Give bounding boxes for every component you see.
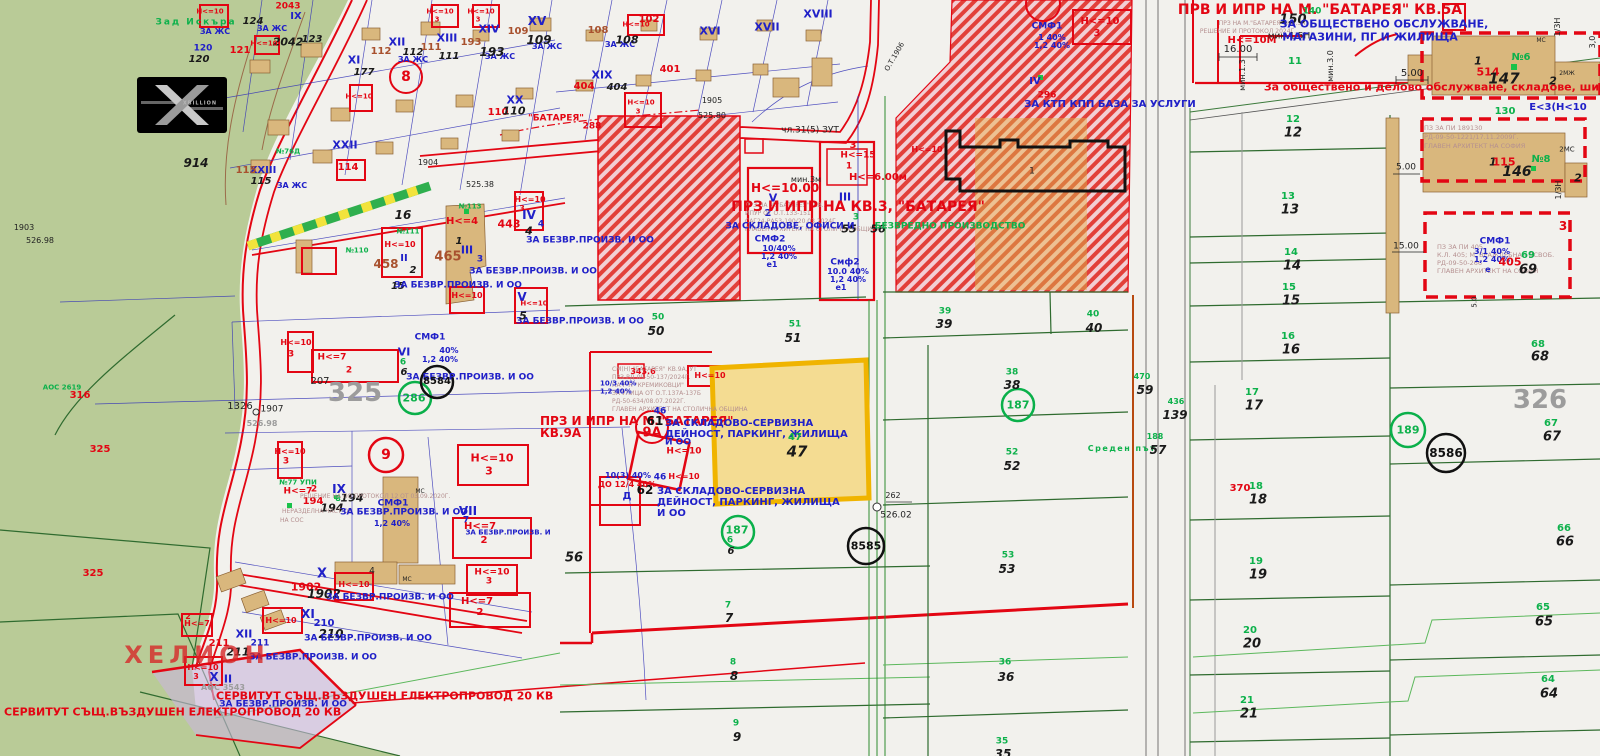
map-label: Н<=7: [318, 354, 347, 363]
map-label: 8586: [1429, 447, 1462, 459]
map-label: ЗА БЕЗВР.ПРОИЗВ. И ОО: [394, 282, 522, 291]
map-label: 53: [999, 563, 1016, 575]
map-label: 17: [1245, 388, 1259, 398]
map-label: 51: [789, 321, 802, 330]
map-label: 114: [338, 163, 359, 173]
map-label: 316: [70, 391, 91, 401]
map-label: 436: [1168, 398, 1185, 406]
map-label: 325: [90, 445, 111, 455]
map-label: 5: [519, 311, 527, 322]
map-label: чл.31(5) ЗУТ: [781, 127, 839, 136]
map-label: 40%: [439, 347, 458, 355]
map-label: Н<=10: [196, 9, 223, 16]
map-label: 458: [373, 258, 398, 270]
map-label: №111: [396, 229, 419, 236]
map-label: 19: [1249, 569, 1267, 582]
map-label: КВ.9А: [540, 427, 581, 439]
map-label: 526.02: [880, 512, 912, 521]
map-label: Н<=7: [461, 597, 493, 607]
map-label: 1,2 40%: [374, 520, 410, 528]
map-label: МАГАЗИНИ, ПГ И ЖИЛИЩА: [1282, 32, 1458, 43]
map-label: 288: [583, 123, 602, 132]
map-label: Н<=10: [622, 22, 649, 29]
map-label: мин.1.3: [1239, 59, 1247, 91]
map-label: 443: [498, 219, 521, 230]
map-label: 7: [725, 602, 731, 611]
map-label: 14: [1283, 260, 1301, 273]
map-label: XV: [528, 15, 547, 27]
map-label: 21: [1240, 696, 1254, 706]
map-label: РД-50-634/08.07.2022Г.: [612, 399, 686, 405]
map-label: 6: [727, 537, 733, 546]
map-label: 15: [1282, 295, 1300, 308]
map-label: №113: [458, 204, 481, 211]
map-label: е1: [836, 284, 847, 292]
map-label: 187: [726, 525, 749, 536]
map-label: 8585: [851, 541, 882, 552]
map-label: 9А: [642, 427, 661, 440]
map-label: МС: [1536, 38, 1545, 44]
map-label: XBILLION: [183, 102, 217, 107]
map-label: 8: [730, 659, 736, 668]
map-label: 47: [787, 445, 808, 460]
map-label: 123: [302, 35, 323, 45]
map-label: 193: [479, 46, 504, 58]
map-label: 3: [1559, 220, 1567, 232]
map-label: ЗА ЖС: [200, 28, 230, 36]
map-label: 370: [1230, 484, 1251, 494]
map-label: 1907: [261, 406, 284, 415]
map-label: "БАТАРЕЯ": [528, 115, 584, 124]
map-label: ЗА БЕЗВР.ПРОИЗВ. И ОО: [526, 237, 654, 246]
map-label: 68: [1531, 351, 1549, 364]
map-label: Н<=10: [474, 569, 509, 578]
map-label: 1905: [702, 97, 722, 105]
map-label: Е<3(Н<10: [1529, 103, 1586, 113]
map-label: 3: [283, 458, 289, 467]
map-label: 1904: [418, 159, 438, 167]
map-label: Н<=10: [471, 453, 514, 464]
map-label: 3: [193, 673, 199, 681]
map-label: 69: [1521, 251, 1535, 261]
map-label: 147: [1488, 72, 1519, 87]
map-label: XVII: [754, 22, 779, 33]
map-label: 10/3 40%: [600, 381, 636, 388]
map-label: Н<=10: [668, 473, 699, 481]
map-label: 14: [1284, 248, 1298, 258]
map-label: 8: [401, 70, 411, 84]
map-label: ЗА БЕЗВР.ПРОИЗВ. И ОО: [219, 701, 347, 710]
map-label: 3: [477, 256, 483, 265]
map-label: 109: [526, 34, 551, 46]
map-label: X: [317, 568, 327, 581]
map-labels-layer: Зад Искъра3163253259141903526.98АОС 2619…: [0, 0, 1600, 756]
map-label: 3: [288, 351, 294, 360]
map-label: ХЕЛИОН: [124, 643, 269, 667]
map-label: 1,2 40%: [422, 356, 458, 364]
map-label: 17: [1245, 400, 1263, 413]
map-label: 3: [850, 141, 857, 151]
map-label: 525.80: [698, 112, 726, 120]
map-label: 50: [648, 325, 665, 337]
map-label: ЗА ОБЩЕСТВЕНО ОБСЛУЖВАНЕ,: [1280, 19, 1489, 30]
map-label: 526.98: [247, 420, 278, 428]
map-label: 53: [1002, 552, 1015, 561]
map-label: ЗА КТП КПП БАЗА ЗА УСЛУГИ: [1024, 100, 1195, 110]
map-label: 13: [1281, 204, 1299, 217]
map-label: 1/3Н: [1554, 18, 1562, 37]
map-label: 35: [996, 738, 1009, 747]
map-label: Н<=15: [840, 152, 875, 161]
map-label: 40: [1086, 322, 1103, 334]
map-label: 111: [439, 52, 460, 62]
map-label: 187: [1007, 400, 1030, 411]
map-label: 1,2 40%: [1034, 42, 1070, 50]
map-label: 470: [1134, 373, 1151, 381]
map-label: Н<=10: [1080, 17, 1119, 27]
map-label: IX: [290, 12, 301, 22]
map-label: СМ(Н) "БАТАРЕЯ" КВ.9А, УТ: [612, 367, 697, 373]
map-label: ЗА ЖС: [277, 182, 307, 190]
map-label: ДЕЙНОСТ, ПАРКИНГ, ЖИЛИЩА: [665, 430, 848, 440]
map-label: 11: [1288, 57, 1302, 67]
map-label: 188: [1147, 433, 1164, 441]
map-label: 130: [1495, 107, 1516, 117]
map-label: 5.0: [1472, 296, 1479, 307]
map-label: 16.00: [1224, 45, 1253, 55]
map-label: 262: [885, 492, 900, 500]
map-label: ДО 12/4 40%: [598, 481, 656, 489]
map-label: 8: [730, 670, 738, 682]
map-label: 1903: [14, 224, 34, 232]
map-label: 1: [1029, 168, 1035, 177]
map-label: 465: [434, 251, 461, 264]
map-label: е: [1485, 266, 1490, 274]
map-label: МС: [402, 577, 411, 583]
map-label: 177: [354, 68, 375, 78]
map-label: 16: [395, 209, 412, 221]
map-label: СМФ1: [1480, 238, 1511, 247]
map-label: IV: [522, 209, 536, 221]
map-label: 1326: [227, 402, 252, 412]
map-label: 4: [369, 568, 375, 577]
map-label: АОС 2619: [43, 385, 81, 392]
map-label: Н<=10: [451, 292, 482, 300]
map-label: 2: [185, 613, 191, 621]
map-label: 64: [1540, 688, 1558, 701]
map-label: 5.00: [1401, 69, 1423, 79]
cadastral-map-canvas[interactable]: Зад Искъра3163253259141903526.98АОС 2619…: [0, 0, 1600, 756]
map-label: Н<=7: [184, 620, 210, 628]
map-label: 2: [1549, 76, 1557, 87]
map-label: ПЗ ЗА ПИ 189130: [1424, 125, 1482, 132]
map-label: Н<=10: [274, 448, 305, 456]
map-label: 108: [588, 26, 609, 36]
map-label: ЗА БЕЗВР.ПРОИЗВ. И ОО: [326, 594, 454, 603]
map-label: IV: [1029, 77, 1040, 87]
map-label: 52: [1006, 449, 1019, 458]
map-label: ЗА СКЛАДОВО-СЕРВИЗНА: [657, 487, 805, 497]
map-label: Н<=10: [911, 146, 942, 154]
map-label: 18: [1249, 482, 1263, 492]
map-label: 3: [485, 466, 493, 477]
map-label: ЗА ЖС: [257, 25, 287, 33]
map-label: 56: [565, 552, 583, 565]
map-label: 189: [1397, 425, 1420, 436]
map-label: 35: [995, 748, 1012, 756]
map-label: 8584: [423, 377, 451, 387]
map-label: ЗА БЕЗВР.ПРОИЗВ. И ОО: [304, 635, 432, 644]
map-label: 38: [1004, 379, 1021, 391]
map-label: 36: [998, 671, 1015, 683]
map-label: 66: [1556, 536, 1574, 549]
map-label: 6: [728, 547, 735, 557]
map-label: 526.98: [26, 237, 54, 245]
map-label: XI: [348, 55, 361, 66]
map-label: 19: [1249, 557, 1263, 567]
map-label: 325: [83, 569, 104, 579]
map-label: №110: [345, 248, 368, 255]
map-label: 39: [939, 308, 952, 317]
map-label: 69: [1519, 264, 1537, 277]
map-label: РД-09-50-1221/17.11.2009Г.: [1424, 134, 1519, 141]
map-label: II: [400, 254, 407, 264]
map-label: 12: [1284, 127, 1302, 140]
map-label: 3: [435, 17, 440, 24]
map-label: 112: [371, 47, 392, 57]
map-label: Н<=10: [384, 241, 415, 249]
map-label: Н<=10: [345, 94, 372, 101]
map-label: ГЛАВЕН АРХИТЕКТ НА СТОЛИЧНА ОБЩИНА: [612, 407, 747, 413]
map-label: 404: [607, 83, 628, 93]
map-label: 286: [403, 393, 426, 404]
map-label: Д: [623, 492, 632, 502]
map-label: СМФ1: [1032, 23, 1063, 32]
map-label: 3: [486, 578, 492, 587]
map-label: 15.00: [1393, 243, 1419, 252]
map-label: Н<=10: [265, 617, 296, 625]
map-label: 20: [1243, 626, 1257, 636]
map-label: Среден път: [1088, 445, 1156, 453]
map-label: О.Т.1906: [884, 41, 906, 72]
map-label: 2МЖ: [1559, 71, 1574, 77]
map-label: 67: [1544, 419, 1558, 429]
map-label: ЗА БЕЗВР.ПРОИЗВ. И ОО: [516, 318, 644, 327]
map-label: 10(3) 40%: [605, 472, 651, 480]
map-label: 2: [477, 608, 484, 618]
map-label: 67: [1543, 431, 1561, 444]
map-label: №8: [1532, 155, 1551, 165]
map-label: 121: [230, 46, 251, 56]
map-label: 108: [616, 35, 639, 46]
map-label: ЗА БЕЗВР.ПРОИЗВ. И ОО: [340, 509, 468, 518]
map-label: 39: [936, 318, 953, 330]
map-label: И ОО: [657, 509, 686, 519]
map-label: 68: [1531, 340, 1545, 350]
map-label: 15: [1282, 283, 1296, 293]
map-label: 64: [1541, 675, 1555, 685]
map-label: 2МС: [1559, 147, 1574, 154]
map-label: Н<=10: [250, 41, 277, 48]
map-label: 18: [1249, 494, 1267, 507]
map-label: Н<=10: [666, 448, 701, 457]
map-label: 1: [846, 163, 852, 172]
map-label: №76Д: [276, 149, 300, 156]
map-label: СМФ1: [415, 334, 446, 343]
map-label: мин.3.0: [1327, 50, 1335, 82]
map-label: 109: [508, 27, 529, 37]
map-label: ДЕЙНОСТ, ПАРКИНГ, ЖИЛИЩА: [657, 498, 840, 508]
map-label: VI: [398, 347, 411, 358]
map-label: 115: [251, 177, 272, 187]
map-label: 2: [410, 266, 417, 276]
map-label: III: [839, 192, 851, 203]
map-label: 51: [785, 332, 802, 344]
map-label: 47: [788, 433, 802, 443]
map-label: 326: [1513, 387, 1567, 413]
map-label: 38: [1006, 369, 1019, 378]
map-label: 115: [236, 166, 257, 176]
map-label: 140: [1303, 8, 1322, 17]
map-label: Н<=10: [627, 100, 654, 107]
map-label: 9: [733, 731, 741, 743]
map-label: Х: [209, 671, 218, 683]
map-label: Н<=10: [694, 372, 725, 380]
map-label: 46: [654, 408, 667, 417]
map-label: 57: [1150, 444, 1167, 456]
map-label: 1,2 40%: [600, 389, 632, 396]
map-label: Н<=10: [426, 9, 453, 16]
map-label: №6: [1512, 53, 1531, 63]
map-label: Н<=10.00: [751, 182, 819, 194]
map-label: XVIII: [803, 9, 832, 20]
map-label: 40: [1087, 311, 1100, 320]
map-label: 50: [652, 314, 665, 323]
map-label: XIV: [478, 24, 499, 35]
map-label: 525.38: [466, 181, 494, 189]
map-label: 66: [1557, 524, 1571, 534]
map-label: 4: [538, 221, 544, 230]
map-label: 59: [1137, 384, 1154, 396]
map-label: 404: [574, 82, 595, 92]
map-label: 16: [1282, 344, 1300, 357]
map-label: 120: [189, 55, 210, 65]
map-label: Н<=10: [467, 9, 494, 16]
map-label: 20: [1243, 638, 1261, 651]
map-label: 13: [1281, 192, 1295, 202]
map-label: 401: [660, 65, 681, 75]
map-label: 16: [1281, 332, 1295, 342]
map-label: 139: [1162, 409, 1187, 421]
map-label: 110: [503, 106, 526, 117]
map-label: 65: [1535, 616, 1553, 629]
map-label: XXII: [332, 140, 357, 151]
map-label: 3: [636, 109, 641, 116]
map-label: III: [461, 245, 473, 256]
map-label: 146: [1502, 165, 1531, 179]
map-label: е1: [767, 261, 778, 269]
map-label: 207: [310, 377, 329, 387]
map-label: Н<=4: [446, 217, 478, 227]
map-label: ГЛАВЕН АРХИТЕКТ НА СОФИЯ: [1424, 143, 1525, 150]
map-label: XVI: [699, 26, 720, 37]
map-label: ЗА БЕЗВР.ПРОИЗВ. И ОО: [469, 268, 597, 277]
map-label: 193: [461, 38, 482, 48]
map-label: Н<=10: [514, 196, 545, 204]
map-label: НА СОС: [280, 518, 304, 524]
map-label: 5.00: [1396, 164, 1416, 173]
map-label: 36: [999, 659, 1012, 668]
map-label: 9: [733, 720, 739, 729]
map-label: Н<=10: [520, 301, 547, 308]
map-label: ЗА СКЛАДОВЕ, ОФИСИ И: [725, 223, 854, 232]
map-label: 1/3Н: [1555, 181, 1563, 200]
map-label: 52: [1004, 460, 1021, 472]
map-label: ЗА СКЛАДОВО-СЕРВИЗНА: [665, 419, 813, 429]
map-label: 3,0: [1589, 36, 1597, 49]
map-label: 2: [481, 536, 488, 546]
map-label: Н<=6.00м: [849, 173, 907, 183]
map-label: XIX: [591, 70, 612, 81]
map-label: 120: [194, 45, 213, 54]
map-label: 2: [346, 367, 352, 376]
map-label: 2: [1574, 173, 1582, 184]
map-label: 325: [328, 380, 382, 406]
map-label: МС: [415, 489, 424, 495]
map-label: 9: [381, 448, 391, 462]
map-label: 3: [1094, 29, 1101, 39]
map-label: ЗА БЕЗВР.ПРОИЗВ. И: [465, 530, 550, 537]
map-label: 65: [1536, 603, 1550, 613]
map-label: 21: [1240, 708, 1258, 721]
map-label: 3: [476, 17, 481, 24]
map-label: 12: [1286, 115, 1300, 125]
map-label: 7: [725, 612, 733, 624]
map-label: БЕЗВРЕДНО ПРОИЗВОДСТВО: [875, 223, 1026, 232]
map-label: Н<=10: [338, 581, 369, 589]
map-label: Н<=10: [280, 339, 311, 347]
map-label: 914: [183, 157, 208, 169]
map-label: РЕШЕНИЕ НА ПО ПРОТОКОЛ 12 ОТ 03.09.2020Г…: [300, 494, 450, 500]
